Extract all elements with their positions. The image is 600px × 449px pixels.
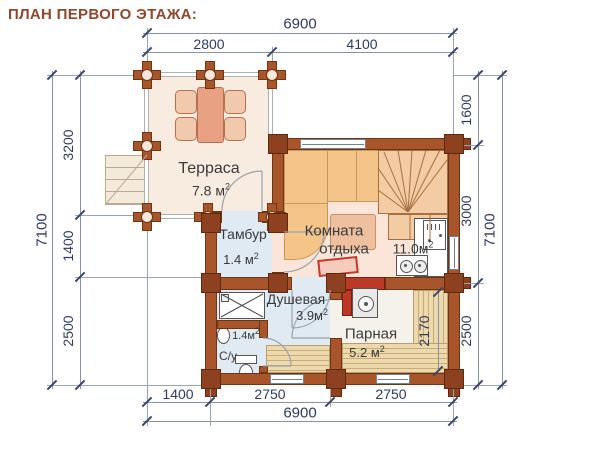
ext-line [453, 28, 454, 138]
chair [224, 90, 246, 114]
dim-left-seg3: 2500 [60, 315, 76, 346]
dim-left-total: 7100 [34, 213, 51, 246]
page-title: ПЛАН ПЕРВОГО ЭТАЖА: [8, 6, 197, 23]
dim-top-seg2: 4100 [346, 36, 377, 52]
corner-post [268, 213, 288, 233]
shower-area: 3.9м2 [296, 307, 328, 323]
wall-wc-right-upper [259, 320, 268, 338]
sauna-name: Парная [345, 326, 397, 343]
window-south-sauna [376, 374, 410, 384]
dim-line [143, 402, 457, 403]
corner-post [201, 273, 221, 293]
dim-line [502, 71, 503, 389]
corner-post [268, 273, 288, 293]
window-south-shower [270, 374, 304, 384]
cooktop-icon [396, 255, 428, 276]
dim-left-seg1: 3200 [60, 129, 76, 160]
winder-stairs [378, 150, 448, 214]
sauna-stove-icon [352, 288, 378, 318]
wc-name: С/у [219, 349, 237, 363]
chair [224, 117, 246, 141]
corner-post [444, 273, 464, 293]
toilet-tank [235, 355, 257, 364]
dim-line [143, 33, 457, 34]
floor-plan: ПЛАН ПЕРВОГО ЭТАЖА: [0, 0, 600, 449]
sink-icon [217, 327, 230, 344]
corner-post [201, 213, 221, 233]
chair [175, 117, 197, 141]
window-north [300, 139, 366, 149]
dim-bottom-seg3: 2750 [375, 386, 406, 402]
dim-right-seg2: 3000 [458, 195, 474, 226]
dim-line [52, 71, 53, 389]
ext-line [75, 277, 205, 278]
corner-post [444, 134, 464, 154]
dim-line [478, 71, 479, 389]
window-east [449, 236, 459, 270]
ext-line [147, 217, 148, 426]
wall-stove-red-vert [342, 290, 352, 316]
dim-right-seg1: 1600 [458, 94, 474, 125]
terrace-area: 7.8 м2 [192, 182, 230, 199]
dim-bottom-seg1: 1400 [162, 386, 193, 402]
terrace-table [197, 87, 224, 143]
corner-post [326, 369, 346, 389]
dim-left-seg2: 1400 [60, 230, 76, 261]
lounge-name-line1: Комната [305, 223, 364, 240]
shower-name: Душевая [267, 291, 325, 307]
wc-area: 1.4м2 [232, 326, 260, 342]
ext-line [47, 75, 147, 76]
dim-bottom-total: 6900 [283, 405, 316, 422]
wall-sauna-west-lower [330, 338, 342, 373]
shower-head-icon [221, 294, 229, 302]
wall-wc-right-lower [259, 366, 268, 373]
dim-right-total: 7100 [482, 213, 499, 246]
log-post [196, 61, 224, 89]
dim-top-total: 6900 [283, 16, 316, 33]
corner-post [268, 134, 288, 154]
corner-post [326, 273, 346, 293]
log-post [258, 61, 286, 89]
dim-line [143, 52, 457, 53]
dim-line [80, 71, 81, 389]
lounge-area: 11.0м2 [393, 240, 434, 257]
dim-top-seg1: 2800 [193, 36, 224, 52]
tambur-area: 1.4 м2 [223, 251, 259, 267]
dim-bottom-seg2: 2750 [254, 386, 285, 402]
log-post [133, 203, 161, 231]
chair [175, 90, 197, 114]
corner-post [201, 369, 221, 389]
terrace-name: Терраса [178, 160, 239, 178]
lounge-name-line2: отдыха [319, 241, 369, 258]
tambur-name: Тамбур [219, 226, 267, 242]
dim-right-seg3: 2500 [458, 315, 474, 346]
dim-line-sauna [438, 292, 439, 371]
wall-west [205, 217, 217, 385]
log-post [133, 132, 161, 160]
corner-post [444, 369, 464, 389]
entry-steps [105, 155, 147, 205]
ext-line [210, 385, 211, 426]
log-post [133, 61, 161, 89]
sauna-area: 5.2 м2 [349, 344, 385, 360]
shower-cabin [219, 292, 265, 319]
shower-decking [266, 345, 330, 373]
dim-sauna-width: 2170 [416, 315, 432, 346]
